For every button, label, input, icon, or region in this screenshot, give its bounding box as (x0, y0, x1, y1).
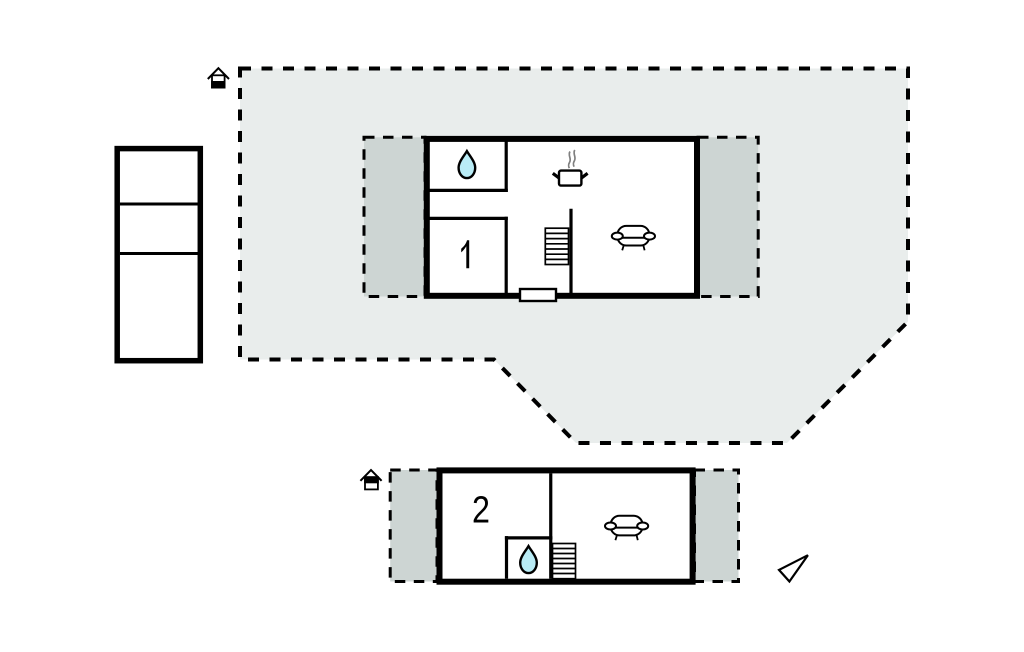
svg-text:2: 2 (472, 489, 490, 531)
